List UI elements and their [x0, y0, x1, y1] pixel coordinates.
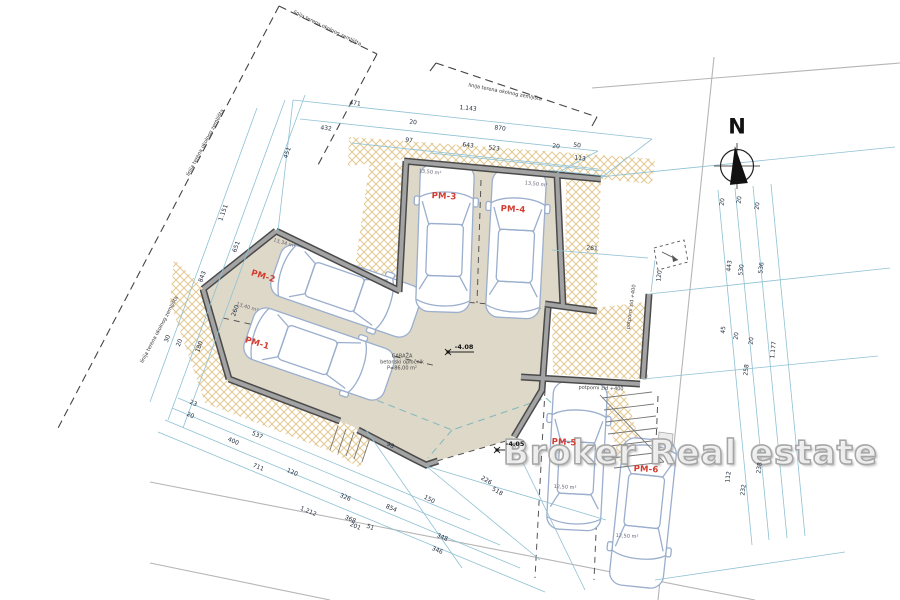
- broker-watermark: Broker Real estate: [503, 433, 878, 473]
- site-plan-drawing: [0, 0, 900, 600]
- site-plan-page: Broker Real estate N 4711.14343220870976…: [0, 0, 900, 600]
- car-pm3: [410, 163, 479, 313]
- compass-rose: [714, 143, 760, 189]
- compass-north-label: N: [728, 117, 746, 138]
- setback-rect-dashed: [654, 240, 688, 270]
